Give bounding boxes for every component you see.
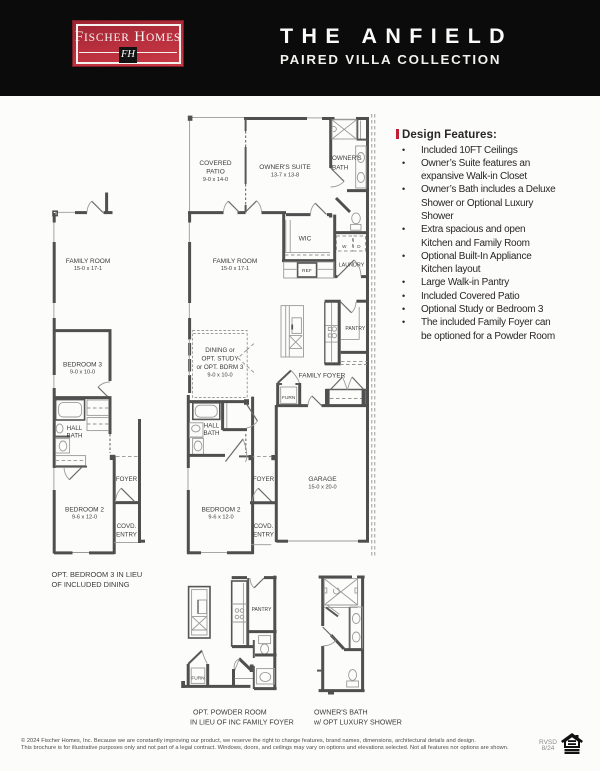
svg-text:9-0 x 10-0: 9-0 x 10-0 bbox=[207, 372, 232, 378]
svg-text:FAMILY ROOM: FAMILY ROOM bbox=[66, 258, 111, 265]
svg-text:15-0 x 20-0: 15-0 x 20-0 bbox=[308, 484, 336, 490]
svg-text:15-0 x 17-1: 15-0 x 17-1 bbox=[74, 266, 102, 272]
svg-text:PANTRY: PANTRY bbox=[252, 607, 272, 613]
svg-text:OWNER'S: OWNER'S bbox=[332, 155, 362, 162]
svg-text:FURN: FURN bbox=[282, 395, 296, 401]
svg-text:15-0 x 17-1: 15-0 x 17-1 bbox=[221, 266, 249, 272]
svg-text:FOYER: FOYER bbox=[116, 476, 138, 483]
svg-text:DINING or: DINING or bbox=[205, 347, 234, 354]
svg-text:COVD.: COVD. bbox=[254, 523, 274, 530]
svg-text:D: D bbox=[357, 244, 361, 249]
svg-text:ENTRY: ENTRY bbox=[116, 531, 137, 538]
svg-text:OWNER'S SUITE: OWNER'S SUITE bbox=[259, 164, 311, 171]
svg-text:BEDROOM 3: BEDROOM 3 bbox=[63, 361, 102, 368]
svg-text:OF INCLUDED DINING: OF INCLUDED DINING bbox=[52, 580, 130, 589]
svg-text:BATH: BATH bbox=[203, 430, 219, 437]
svg-text:FAMILY FOYER: FAMILY FOYER bbox=[299, 373, 346, 380]
svg-text:FOYER: FOYER bbox=[253, 476, 275, 483]
svg-text:9-0 x 10-0: 9-0 x 10-0 bbox=[70, 370, 95, 376]
svg-text:COVD.: COVD. bbox=[117, 523, 137, 530]
svg-text:9-0 x 14-0: 9-0 x 14-0 bbox=[203, 177, 228, 183]
svg-text:HALL: HALL bbox=[67, 425, 83, 432]
svg-text:9-6 x 12-0: 9-6 x 12-0 bbox=[208, 515, 233, 521]
svg-text:BEDROOM 2: BEDROOM 2 bbox=[201, 506, 240, 513]
svg-text:BATH: BATH bbox=[66, 432, 82, 439]
svg-text:IN LIEU OF INC FAMILY FOYER: IN LIEU OF INC FAMILY FOYER bbox=[190, 719, 294, 727]
svg-text:COVERED: COVERED bbox=[199, 160, 231, 167]
svg-text:BEDROOM 2: BEDROOM 2 bbox=[65, 506, 104, 513]
svg-text:GARAGE: GARAGE bbox=[308, 476, 337, 483]
svg-text:PANTRY: PANTRY bbox=[345, 326, 365, 332]
svg-text:OPT. STUDY: OPT. STUDY bbox=[201, 356, 239, 363]
svg-text:HALL: HALL bbox=[204, 423, 220, 430]
svg-text:LAUNDRY: LAUNDRY bbox=[339, 262, 365, 268]
svg-text:ENTRY: ENTRY bbox=[253, 531, 274, 538]
svg-text:WIC: WIC bbox=[299, 236, 312, 243]
svg-text:or OPT. BDRM 3: or OPT. BDRM 3 bbox=[197, 364, 244, 371]
svg-text:OPT. BEDROOM 3 IN LIEU: OPT. BEDROOM 3 IN LIEU bbox=[52, 570, 143, 579]
svg-text:REF: REF bbox=[302, 268, 312, 274]
svg-text:9-6 x 12-0: 9-6 x 12-0 bbox=[72, 515, 97, 521]
svg-text:BATH: BATH bbox=[332, 164, 349, 171]
svg-text:W: W bbox=[342, 244, 347, 249]
svg-text:OPT. POWDER ROOM: OPT. POWDER ROOM bbox=[193, 708, 267, 716]
svg-text:FURN: FURN bbox=[191, 675, 205, 681]
svg-text:OWNER'S BATH: OWNER'S BATH bbox=[314, 708, 368, 716]
svg-text:FAMILY ROOM: FAMILY ROOM bbox=[213, 258, 258, 265]
svg-text:13-7 x 13-8: 13-7 x 13-8 bbox=[271, 173, 299, 179]
svg-text:w/ OPT LUXURY SHOWER: w/ OPT LUXURY SHOWER bbox=[313, 719, 402, 727]
svg-text:PATIO: PATIO bbox=[206, 168, 225, 175]
